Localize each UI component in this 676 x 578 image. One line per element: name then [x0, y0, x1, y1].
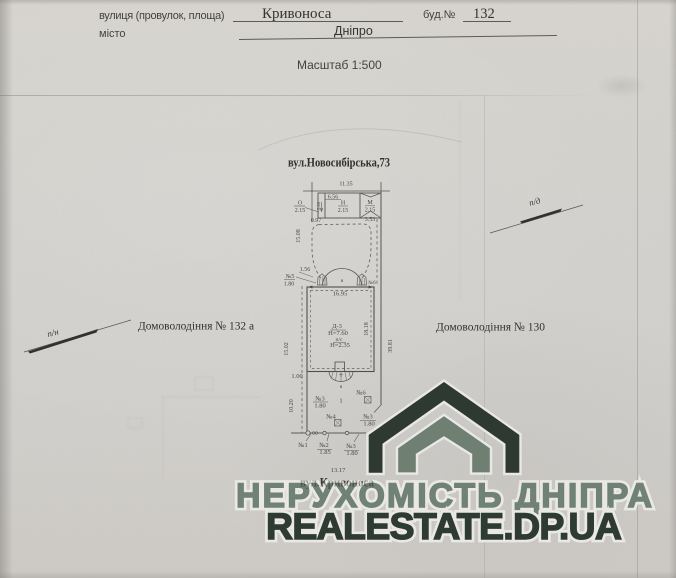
- svg-text:REALESTATE.DP.UA: REALESTATE.DP.UA: [266, 505, 622, 547]
- svg-text:вул.Кривоноса: вул.Кривоноса: [300, 476, 375, 490]
